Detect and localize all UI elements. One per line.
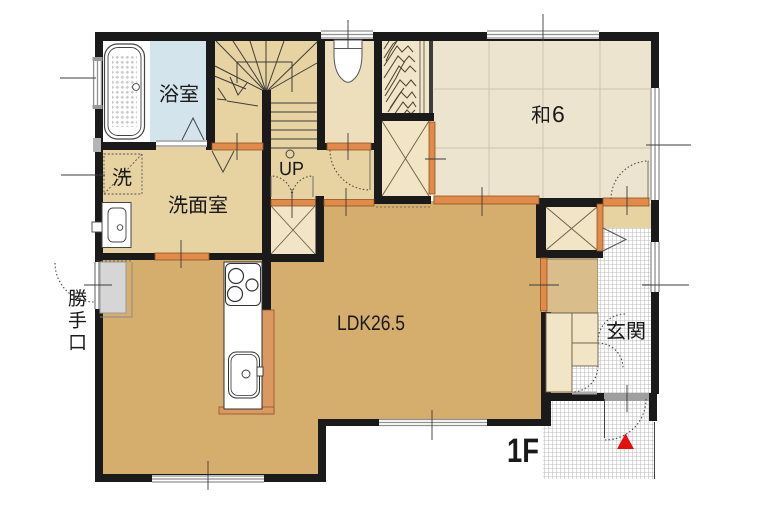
svg-text:6: 6	[552, 101, 565, 127]
svg-text:1F: 1F	[507, 432, 539, 470]
svg-text:UP: UP	[279, 159, 304, 180]
svg-text:LDK26.5: LDK26.5	[337, 312, 405, 335]
